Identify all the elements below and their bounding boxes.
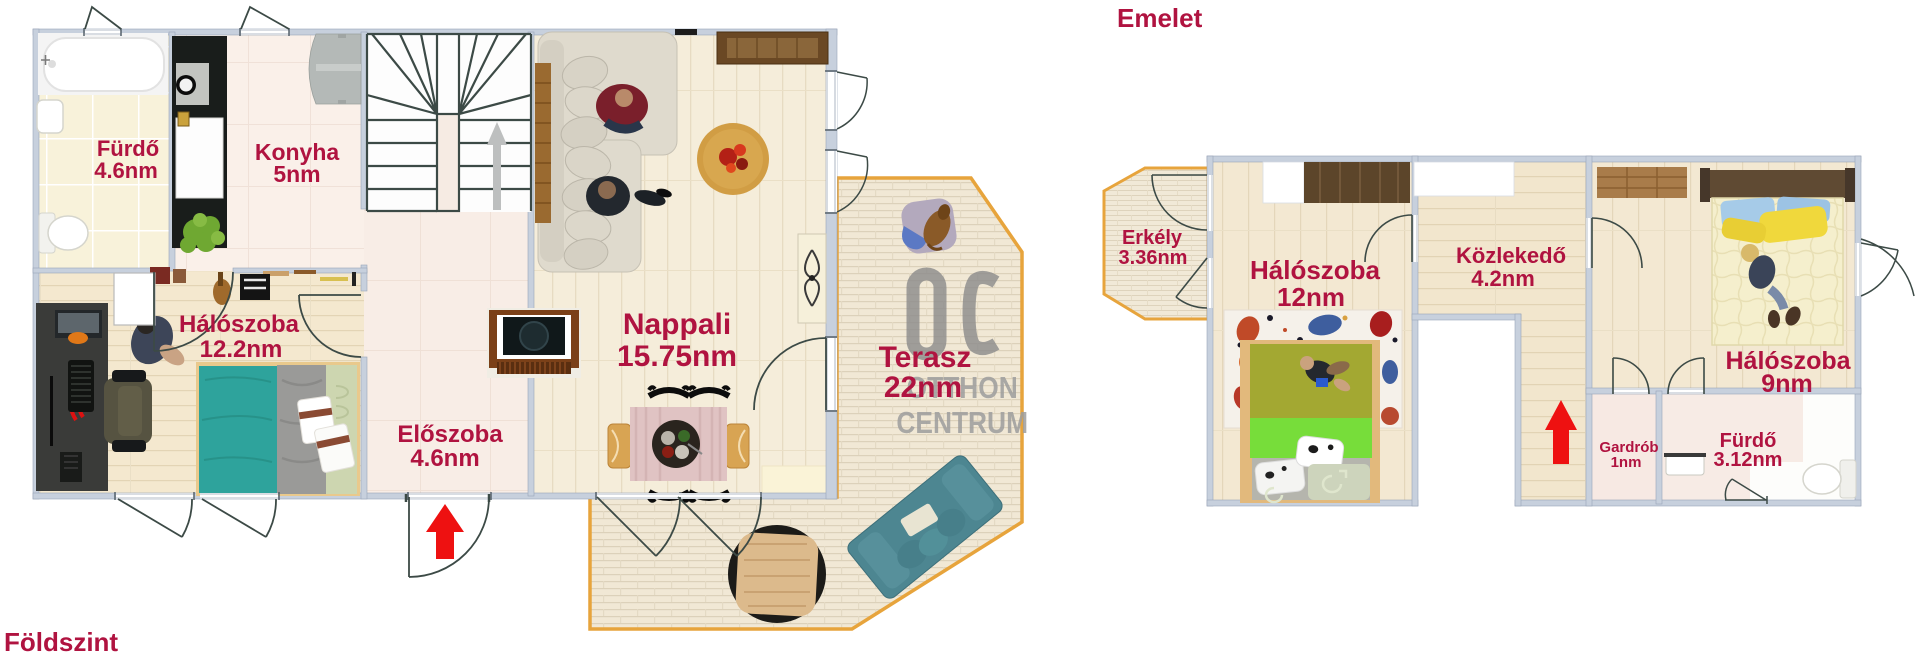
svg-text:Hálószoba: Hálószoba	[179, 311, 300, 338]
svg-text:4.2nm: 4.2nm	[1471, 266, 1535, 291]
svg-text:15.75nm: 15.75nm	[617, 340, 737, 373]
svg-text:12nm: 12nm	[1277, 282, 1345, 312]
svg-text:Hálószoba: Hálószoba	[1250, 255, 1381, 285]
svg-text:12.2nm: 12.2nm	[200, 336, 283, 363]
svg-text:4.6nm: 4.6nm	[94, 158, 158, 183]
svg-text:3.12nm: 3.12nm	[1714, 449, 1783, 471]
svg-text:22nm: 22nm	[884, 371, 962, 404]
svg-text:Terasz: Terasz	[879, 341, 972, 374]
svg-text:Közlekedő: Közlekedő	[1456, 243, 1566, 268]
svg-text:Földszint: Földszint	[4, 627, 118, 657]
svg-text:Előszoba: Előszoba	[397, 421, 503, 448]
svg-text:Erkély: Erkély	[1122, 227, 1183, 249]
svg-text:3.36nm: 3.36nm	[1119, 247, 1188, 269]
svg-text:1nm: 1nm	[1611, 454, 1642, 471]
svg-text:Nappali: Nappali	[623, 308, 731, 341]
svg-text:CENTRUM: CENTRUM	[896, 406, 1028, 440]
svg-text:Emelet: Emelet	[1117, 3, 1203, 33]
svg-text:4.6nm: 4.6nm	[410, 445, 479, 472]
svg-text:9nm: 9nm	[1761, 370, 1812, 398]
svg-text:5nm: 5nm	[273, 161, 320, 187]
